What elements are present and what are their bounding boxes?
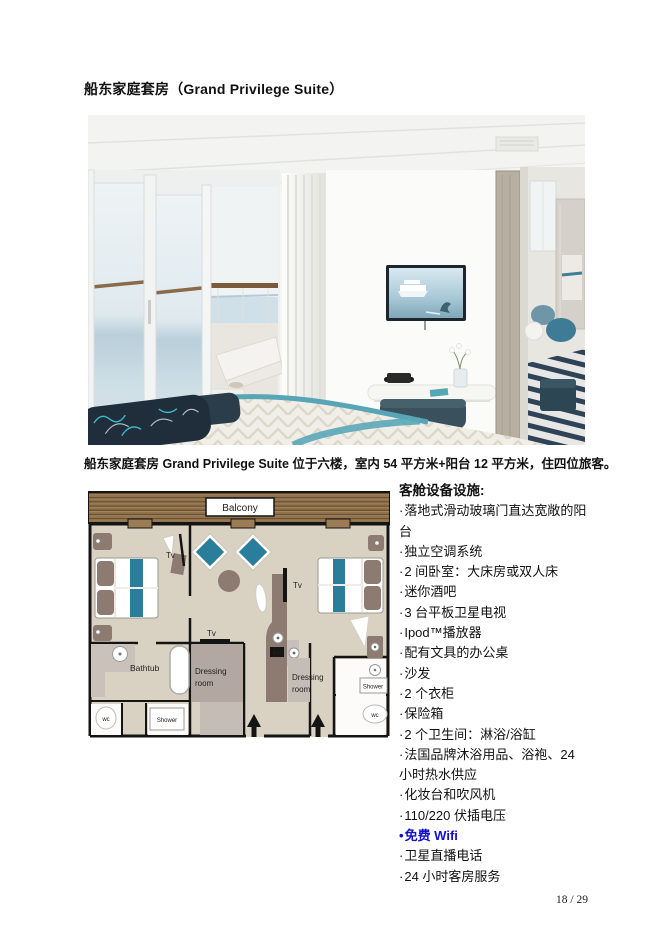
pocket-door — [496, 171, 520, 445]
ceiling-vent — [496, 137, 538, 151]
plan-label-balcony: Balcony — [222, 503, 258, 514]
plan-label-shower: Shower — [157, 718, 177, 724]
amenity-item: ·3 台平板卫星电视 — [399, 603, 587, 623]
side-table — [525, 322, 543, 340]
plan-label-dressing: Dressing — [292, 673, 324, 682]
amenities-header: 客舱设备设施: — [399, 481, 587, 501]
amenity-item: ·独立空调系统 — [399, 542, 587, 562]
plan-label-tv: Tv — [207, 629, 216, 638]
suite-description: 船东家庭套房 Grand Privilege Suite 位于六楼，室内 54 … — [84, 453, 604, 472]
wall-tv — [386, 265, 466, 330]
nightstand — [93, 625, 112, 641]
plan-label-bathtub: Bathtub — [130, 663, 160, 673]
amenity-item: ·迷你酒吧 — [399, 582, 587, 602]
mirror-wall — [556, 199, 585, 329]
plan-label-tv: Tv — [166, 551, 175, 560]
amenity-item: ·24 小时客房服务 — [399, 867, 587, 887]
plan-label-shower: Shower — [363, 685, 383, 691]
amenity-item: ·法国品牌沐浴用品、浴袍、24 小时热水供应 — [399, 745, 587, 786]
nightstand — [93, 533, 112, 550]
bathtub — [170, 646, 189, 694]
amenity-item-free-wifi: •免费 Wifi — [399, 826, 587, 846]
armchair — [546, 318, 576, 342]
page-number: 18 / 29 — [556, 894, 588, 906]
amenity-item: ·2 个衣柜 — [399, 684, 587, 704]
suite-photo — [88, 115, 585, 445]
door-handle — [148, 300, 151, 324]
plan-label-dressing: Dressing — [195, 667, 227, 676]
floorplan: Balcony — [88, 490, 390, 740]
right-bathroom: Shower wc — [336, 659, 387, 735]
amenity-item: ·2 个卫生间：淋浴/浴缸 — [399, 725, 587, 745]
curtain — [282, 173, 326, 428]
amenity-item: ·化妆台和吹风机 — [399, 785, 587, 805]
amenity-item: ·沙发 — [399, 664, 587, 684]
double-bed — [318, 558, 383, 613]
document-page: 船东家庭套房（Grand Privilege Suite） — [0, 0, 668, 945]
amenity-item: ·110/220 伏插电压 — [399, 806, 587, 826]
amenity-item: ·2 间卧室：大床房或双人床 — [399, 562, 587, 582]
tv-on-wall — [200, 639, 230, 643]
plan-balcony: Balcony — [88, 492, 390, 523]
page-title: 船东家庭套房（Grand Privilege Suite） — [84, 79, 343, 99]
plan-label-tv: Tv — [293, 581, 302, 590]
plan-label-bar: Bar — [273, 651, 282, 657]
svg-text:room: room — [195, 679, 214, 688]
tv-on-wall — [283, 568, 287, 602]
amenities-panel: 客舱设备设施: ·落地式滑动玻璃门直达宽敞的阳台 ·独立空调系统 ·2 间卧室：… — [399, 481, 587, 887]
amenity-item: ·配有文具的办公桌 — [399, 643, 587, 663]
amenities-list: ·落地式滑动玻璃门直达宽敞的阳台 ·独立空调系统 ·2 间卧室：大床房或双人床 … — [399, 501, 587, 887]
amenity-item: ·落地式滑动玻璃门直达宽敞的阳台 — [399, 501, 587, 542]
floorplan-image: Balcony — [88, 490, 390, 740]
balcony-handrail — [208, 283, 278, 288]
plan-label-wc: wc — [370, 713, 378, 719]
amenity-item: ·Ipod™播放器 — [399, 623, 587, 643]
amenity-item: ·卫星直播电话 — [399, 846, 587, 866]
suite-photo-image — [88, 115, 585, 445]
svg-text:room: room — [292, 685, 311, 694]
double-bed — [95, 558, 158, 618]
round-table — [218, 570, 240, 592]
amenity-item: ·保险箱 — [399, 704, 587, 724]
living-room-doorway — [496, 167, 585, 445]
plan-label-wc: wc — [101, 717, 109, 723]
